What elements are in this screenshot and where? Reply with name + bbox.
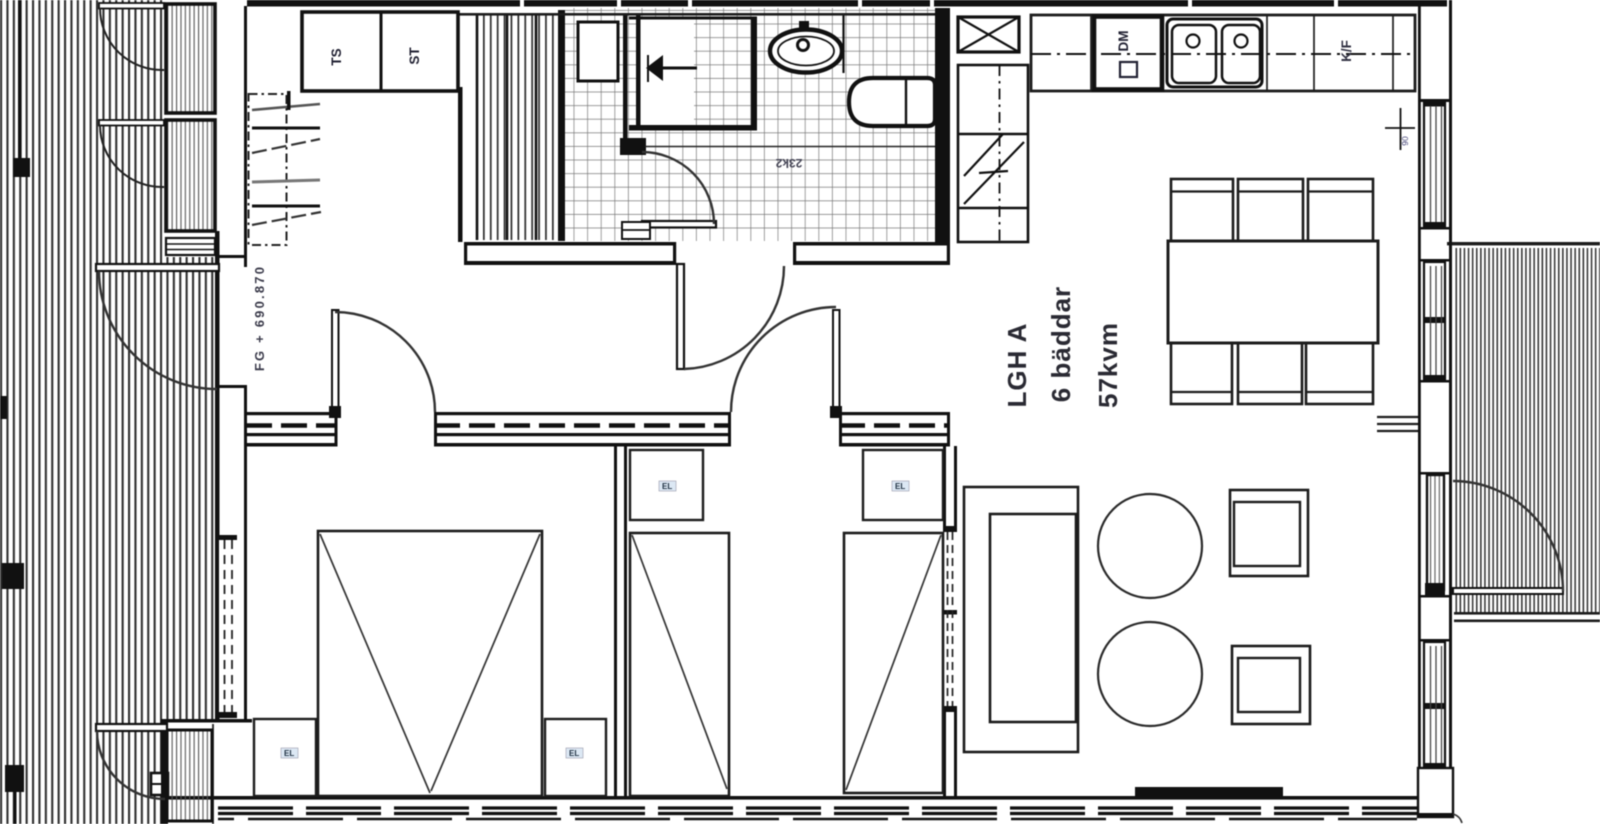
- svg-text:LGH A: LGH A: [1002, 323, 1032, 408]
- svg-text:FG + 690.870: FG + 690.870: [252, 265, 267, 371]
- svg-text:EL: EL: [662, 482, 672, 491]
- svg-text:TS: TS: [329, 48, 344, 65]
- svg-text:6 bäddar: 6 bäddar: [1046, 286, 1076, 402]
- svg-text:ST: ST: [407, 47, 422, 65]
- svg-text:EL: EL: [895, 482, 905, 491]
- svg-text:DM: DM: [1116, 31, 1131, 52]
- svg-text:90: 90: [1400, 136, 1410, 146]
- svg-text:23k2: 23k2: [775, 156, 802, 170]
- svg-text:57kvm: 57kvm: [1093, 322, 1123, 408]
- svg-text:EL: EL: [569, 749, 579, 758]
- svg-text:EL: EL: [284, 749, 294, 758]
- svg-text:K/F: K/F: [1339, 40, 1354, 62]
